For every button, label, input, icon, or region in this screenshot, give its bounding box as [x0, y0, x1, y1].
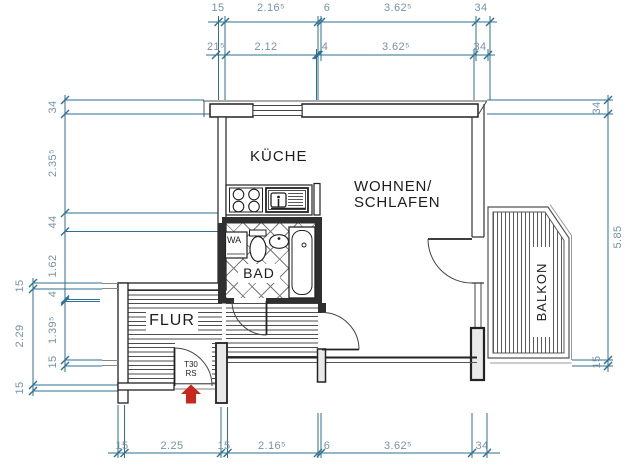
room-label-balkon: BALKON [535, 247, 551, 337]
dim-left-inner-0: 34 [46, 79, 60, 135]
dim-left-inner-1: 2.35⁵ [46, 135, 60, 191]
dim-left-inner-6: 15 [46, 334, 60, 390]
entrance-door-label-1: T30 [178, 360, 204, 369]
room-label-wohnen-line1: WOHNEN/ [354, 179, 440, 195]
dim-left-outer-1: 2.29 [13, 308, 27, 364]
south-east-window [475, 283, 481, 328]
balcony-door-swing [428, 239, 472, 283]
dim-right-0: 34 [590, 80, 604, 136]
flur-south-wall [118, 383, 174, 390]
dim-top-inner-4: 34 [467, 41, 493, 53]
dim-bottom-3: 2.16⁵ [247, 440, 297, 452]
dim-top-outer-3: 3.62⁵ [373, 2, 423, 14]
dim-left-outer-2: 15 [13, 360, 27, 416]
east-window-wall [472, 104, 484, 328]
room-label-kueche: KÜCHE [250, 148, 308, 165]
adjacent-wall-stubs [102, 284, 118, 366]
dim-top-outer-2: 6 [321, 2, 333, 14]
room-label-flur: FLUR [146, 310, 198, 332]
counter-end-wall [314, 184, 320, 216]
dim-bottom-2: 15 [212, 440, 236, 452]
room-label-wohnen-line2: SCHLAFEN [354, 195, 440, 211]
dim-bottom-6: 34 [469, 440, 495, 452]
south-wall-pier [216, 343, 227, 403]
dim-top-inner-0: 21⁵ [201, 41, 231, 53]
dim-top-inner-2: 4 [319, 41, 331, 53]
entrance-arrow-icon [181, 385, 201, 404]
wohnen-door-swing [322, 313, 359, 350]
floor-plan-drawing [0, 0, 630, 464]
room-label-wohnen: WOHNEN/ SCHLAFEN [354, 179, 440, 210]
dim-bottom-1: 2.25 [147, 440, 197, 452]
dim-right-2: 15 [590, 334, 604, 390]
dim-top-outer-0: 15 [206, 2, 230, 14]
room-label-bad: BAD [238, 264, 280, 283]
dim-top-inner-1: 2.12 [241, 41, 291, 53]
top-wall-west [210, 104, 253, 117]
kitchen-fitments [226, 184, 320, 216]
balcony-outline [488, 205, 572, 364]
toilet [250, 237, 266, 262]
washing-machine-label: WA [227, 235, 241, 245]
toilet-tank [250, 230, 267, 236]
floor-plan-page: KÜCHE WOHNEN/ SCHLAFEN BAD FLUR BALKON W… [0, 0, 630, 464]
flur-wohnen-wall [318, 303, 326, 313]
dim-bottom-4: 6 [321, 440, 333, 452]
entrance-door-label-2: RS [178, 369, 204, 378]
flur-north-wall [118, 283, 226, 290]
dim-left-outer-0: 15 [13, 258, 27, 314]
dim-top-outer-4: 34 [468, 2, 494, 14]
entrance-threshold [174, 384, 216, 389]
dim-right-1: 5.85 [611, 209, 625, 265]
bathtub [289, 227, 315, 298]
dim-bottom-5: 3.62⁵ [373, 440, 423, 452]
washbasin [270, 235, 289, 249]
top-wall-east [302, 104, 478, 117]
corner-miter [478, 102, 487, 116]
dim-top-outer-1: 2.16⁵ [246, 2, 296, 14]
dim-top-inner-3: 3.62⁵ [371, 41, 421, 53]
east-wall-pier [471, 328, 484, 380]
dim-bottom-0: 15 [110, 440, 134, 452]
bad-door-swing [232, 301, 267, 335]
sink-tap [277, 196, 280, 199]
